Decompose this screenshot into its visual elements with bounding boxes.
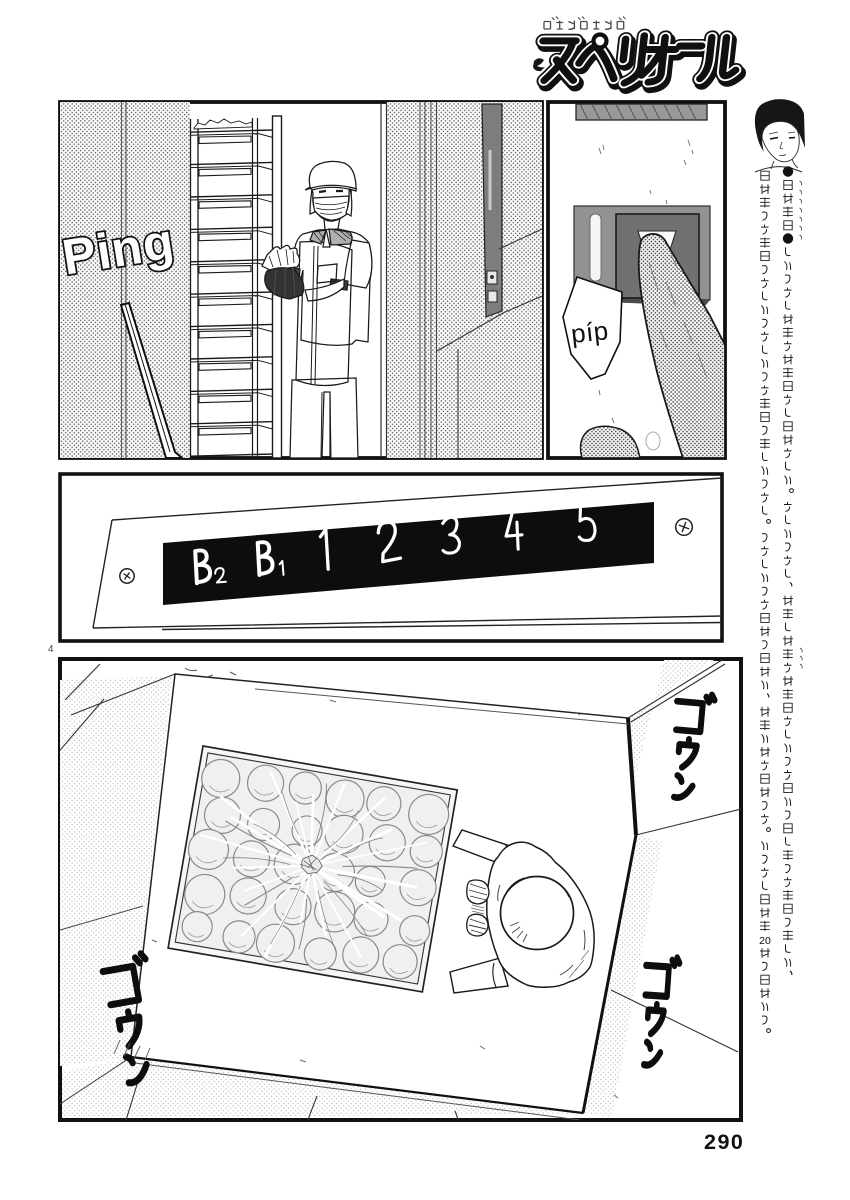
svg-text:20: 20 (759, 935, 771, 947)
svg-text:píp: píp (569, 315, 610, 349)
svg-text:4: 4 (48, 644, 54, 655)
svg-text:290: 290 (704, 1130, 744, 1154)
